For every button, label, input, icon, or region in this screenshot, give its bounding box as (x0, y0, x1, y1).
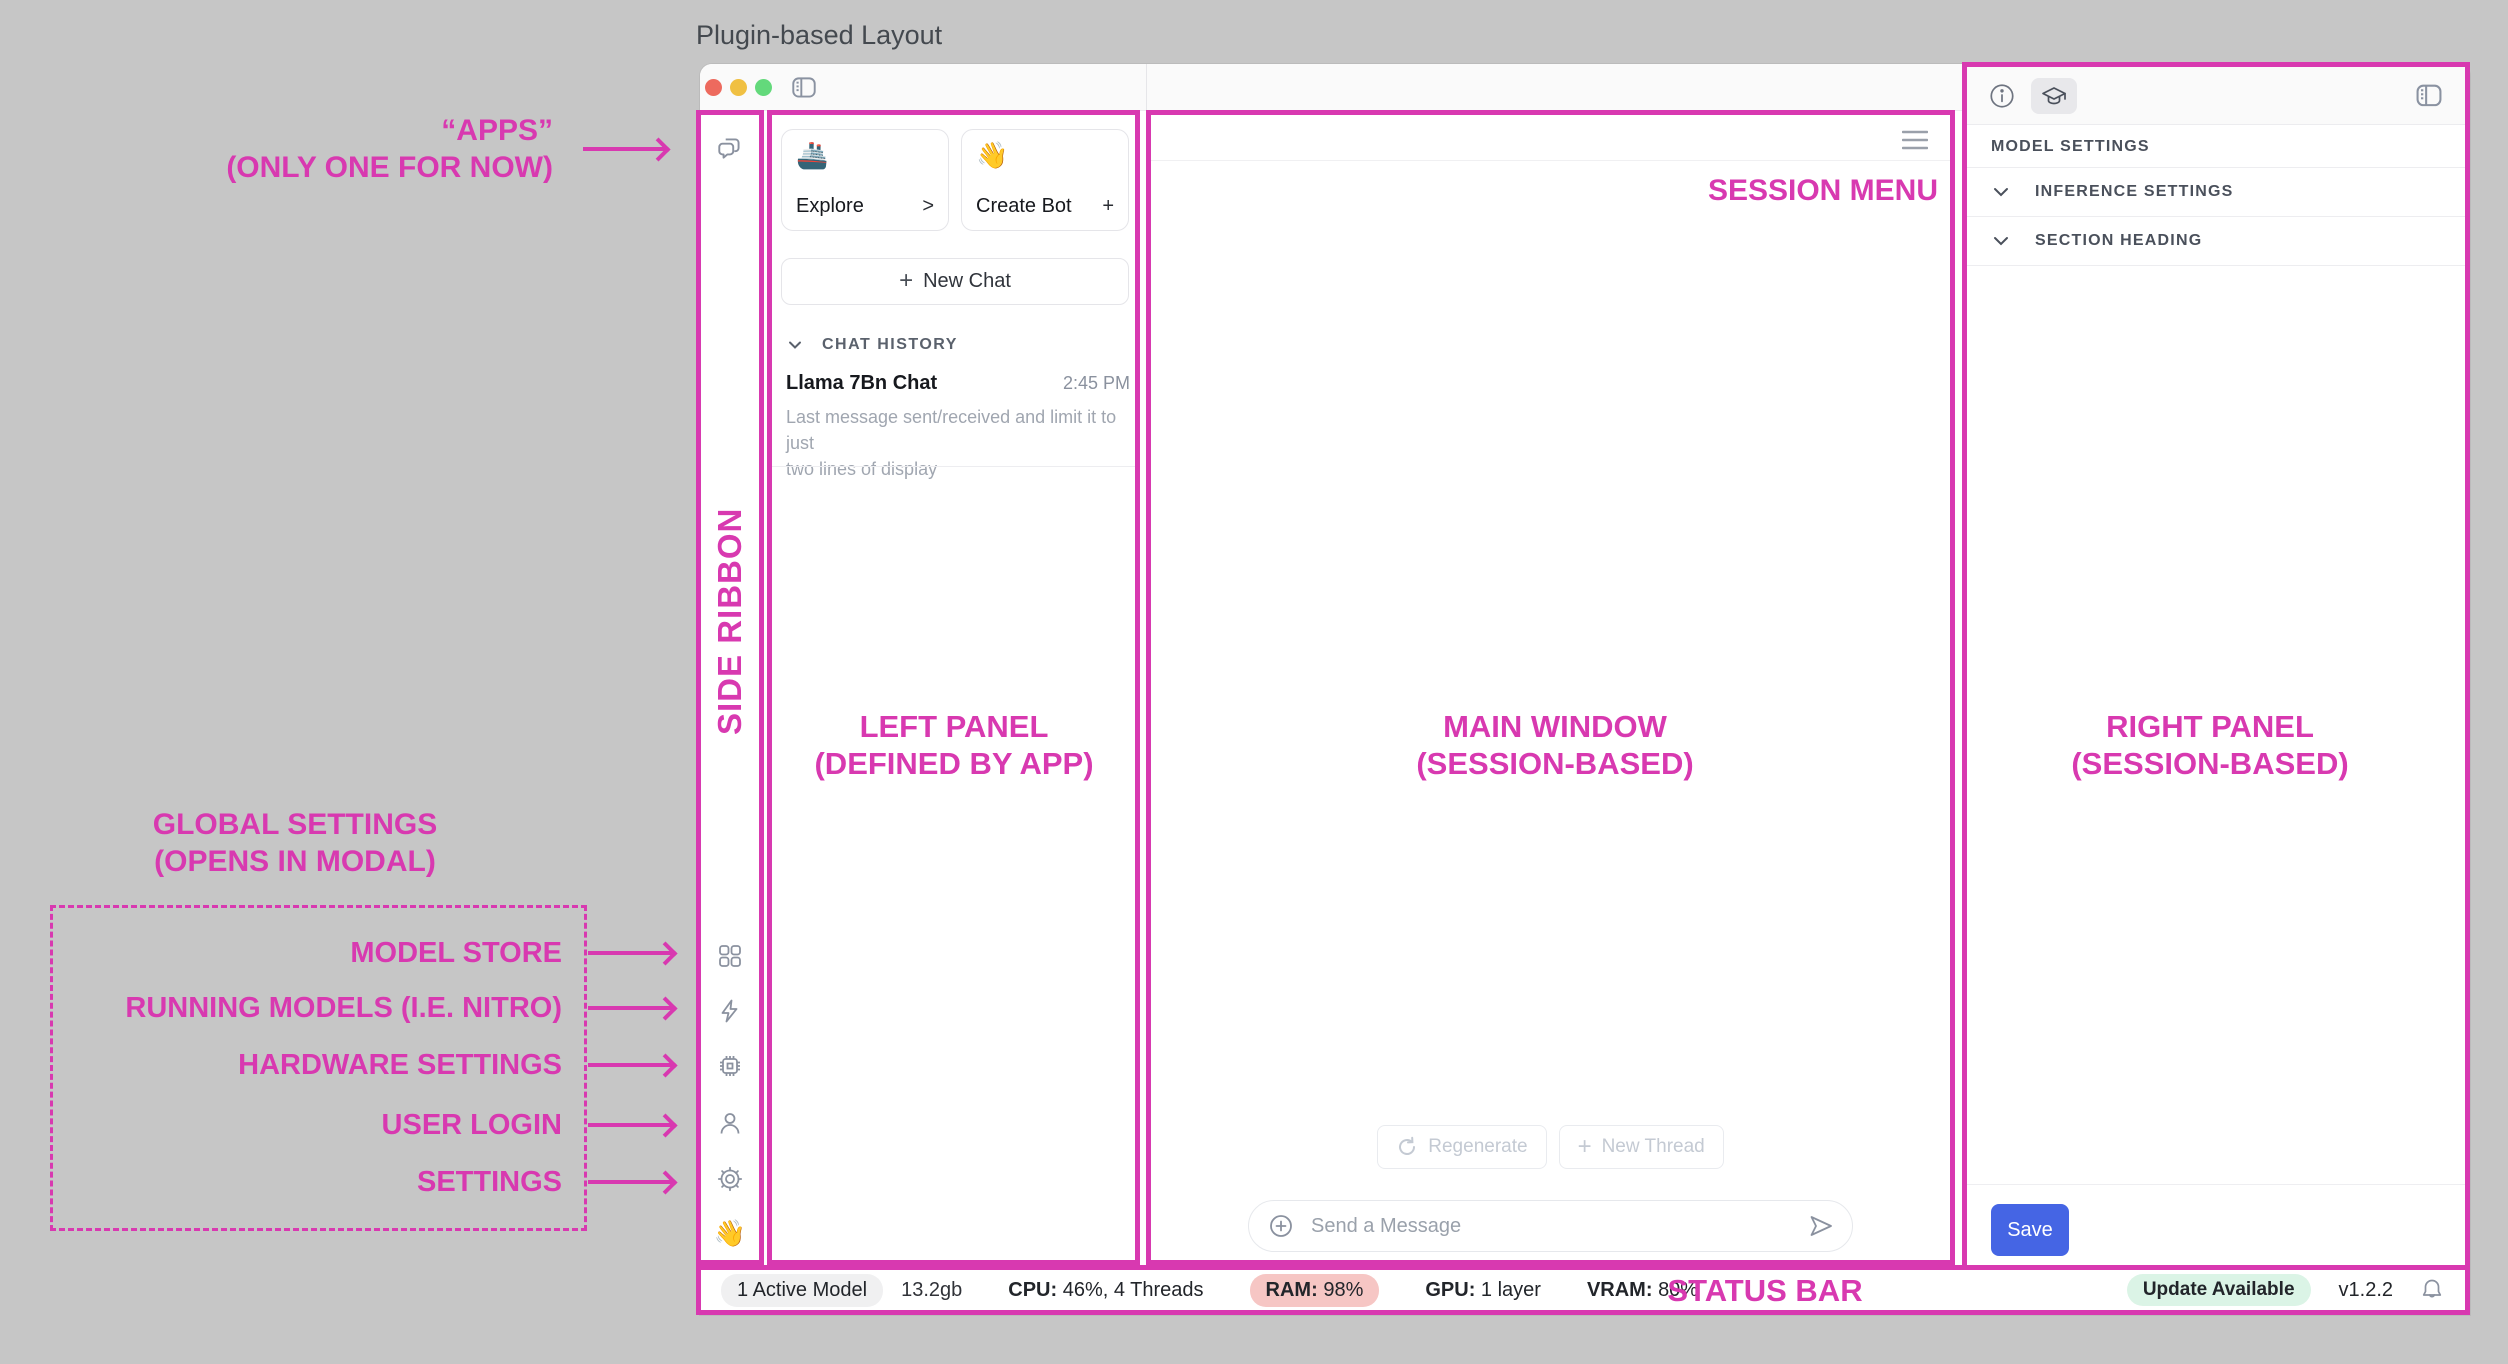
chevron-down-icon (1991, 182, 2011, 202)
annotation-model-store: MODEL STORE (350, 935, 562, 971)
chat-item-preview: Last message sent/received and limit it … (786, 404, 1126, 482)
gpu-stat: GPU: 1 layer (1425, 1279, 1541, 1302)
message-input-container (1248, 1200, 1853, 1252)
plus-icon: + (1578, 1135, 1592, 1159)
panel-toggle-icon[interactable] (2413, 80, 2445, 112)
main-window-toolbar (1151, 115, 1950, 161)
chat-app-icon[interactable] (715, 133, 745, 163)
main-window-outline (1146, 110, 1955, 1265)
attach-plus-icon[interactable] (1267, 1212, 1295, 1240)
sidebar-toggle-icon[interactable] (789, 73, 819, 103)
new-thread-button[interactable]: + New Thread (1559, 1125, 1724, 1169)
annotation-global-settings: GLOBAL SETTINGS (OPENS IN MODAL) (130, 806, 460, 880)
status-bar: 1 Active Model 13.2gb CPU: 46%, 4 Thread… (701, 1270, 2465, 1310)
new-chat-label: New Chat (923, 270, 1011, 293)
create-bot-card[interactable]: 👋 Create Bot + (961, 129, 1129, 231)
zoom-window-button[interactable] (755, 79, 772, 96)
explore-card[interactable]: 🚢 Explore > (781, 129, 949, 231)
explore-card-label: Explore (796, 195, 864, 218)
wave-emoji-icon[interactable]: 👋 (715, 1218, 745, 1248)
annotation-right-panel: RIGHT PANEL (SESSION-BASED) (1990, 708, 2430, 782)
thread-actions-row: Regenerate + New Thread (1151, 1125, 1950, 1169)
titlebar-divider (1146, 64, 1147, 111)
plus-icon: + (1102, 195, 1114, 218)
session-menu-icon[interactable] (1902, 130, 1928, 150)
save-button[interactable]: Save (1991, 1204, 2069, 1256)
create-bot-card-label: Create Bot (976, 195, 1072, 218)
annotation-arrow-running-models (588, 1006, 672, 1010)
annotation-arrow-settings (588, 1180, 672, 1184)
ram-stat-badge: RAM: 98% (1250, 1274, 1380, 1307)
annotation-settings: SETTINGS (417, 1164, 562, 1200)
model-store-icon[interactable] (715, 941, 745, 971)
chevron-down-icon (786, 336, 804, 354)
app-version: v1.2.2 (2339, 1279, 2393, 1302)
hardware-settings-icon[interactable] (715, 1051, 745, 1081)
model-size: 13.2gb (901, 1279, 962, 1302)
design-canvas: Plugin-based Layout (0, 0, 2508, 1364)
info-icon[interactable] (1987, 81, 2017, 111)
model-settings-header: MODEL SETTINGS (1967, 126, 2465, 168)
annotation-apps: “APPS” (ONLY ONE FOR NOW) (226, 112, 553, 186)
notifications-bell-icon[interactable] (2419, 1277, 2445, 1303)
cpu-stat: CPU: 46%, 4 Threads (1008, 1279, 1203, 1302)
settings-gear-icon[interactable] (715, 1164, 745, 1194)
minimize-window-button[interactable] (730, 79, 747, 96)
refresh-icon (1396, 1136, 1418, 1158)
send-message-input[interactable] (1309, 1214, 1794, 1239)
new-chat-button[interactable]: + New Chat (781, 258, 1129, 305)
annotation-running-models: RUNNING MODELS (I.E. NITRO) (125, 990, 562, 1026)
active-model-badge[interactable]: 1 Active Model (721, 1274, 883, 1307)
chat-history-label: CHAT HISTORY (822, 336, 958, 354)
wave-emoji-icon: 👋 (976, 142, 1114, 168)
page-title: Plugin-based Layout (696, 20, 942, 51)
graduation-cap-icon (2040, 82, 2068, 110)
right-panel-toolbar (1967, 67, 2465, 125)
footer-divider (1967, 1184, 2465, 1185)
send-icon[interactable] (1808, 1213, 1834, 1239)
ship-emoji-icon: 🚢 (796, 142, 934, 168)
annotation-arrow-model-store (588, 951, 672, 955)
app-cards-row: 🚢 Explore > 👋 Create Bot + (781, 129, 1129, 231)
inference-settings-section[interactable]: INFERENCE SETTINGS (1967, 168, 2465, 217)
running-models-icon[interactable] (715, 996, 745, 1026)
annotation-hardware-settings: HARDWARE SETTINGS (238, 1047, 562, 1083)
list-divider (772, 466, 1135, 467)
annotation-arrow-hardware-settings (588, 1063, 672, 1067)
annotation-session-menu: SESSION MENU (1708, 172, 1938, 209)
annotation-user-login: USER LOGIN (382, 1107, 562, 1143)
chevron-down-icon (1991, 231, 2011, 251)
annotation-arrow-apps (583, 147, 665, 151)
chat-item-title: Llama 7Bn Chat (786, 372, 937, 395)
close-window-button[interactable] (705, 79, 722, 96)
annotation-left-panel: LEFT PANEL (DEFINED BY APP) (779, 708, 1129, 782)
chat-history-header[interactable]: CHAT HISTORY (786, 336, 958, 354)
annotation-side-ribbon: SIDE RIBBON (712, 500, 748, 735)
user-login-icon[interactable] (715, 1108, 745, 1138)
chevron-right-icon: > (922, 195, 934, 218)
annotation-arrow-user-login (588, 1123, 672, 1127)
window-titlebar (700, 64, 1963, 111)
plus-icon: + (899, 269, 913, 293)
chat-item-time: 2:45 PM (1063, 373, 1130, 394)
regenerate-button[interactable]: Regenerate (1377, 1125, 1546, 1169)
annotation-status-bar: STATUS BAR (1600, 1271, 1930, 1311)
update-available-badge[interactable]: Update Available (2127, 1274, 2311, 1306)
section-heading-section[interactable]: SECTION HEADING (1967, 217, 2465, 266)
annotation-main-window: MAIN WINDOW (SESSION-BASED) (1330, 708, 1780, 782)
chat-list-item[interactable]: Llama 7Bn Chat 2:45 PM (786, 372, 1130, 395)
assistant-tab-active[interactable] (2031, 78, 2077, 114)
